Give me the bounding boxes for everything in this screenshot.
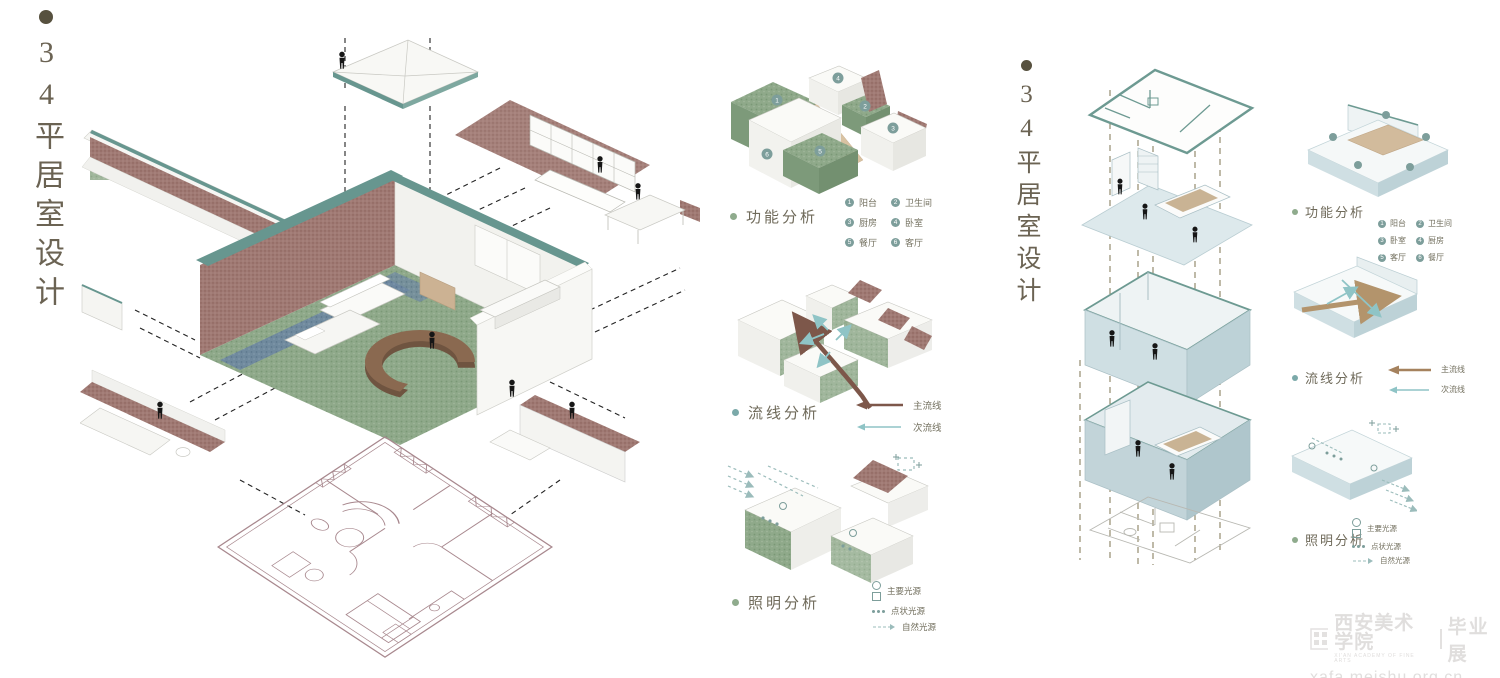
svg-text:5: 5 bbox=[818, 148, 822, 155]
seal-icon bbox=[1310, 628, 1328, 650]
section-bullet-icon bbox=[730, 213, 737, 220]
natural-light-symbol-icon bbox=[1352, 557, 1374, 565]
legend-item: 主要光源 bbox=[1352, 518, 1410, 538]
legend-item: 4厨房 bbox=[1416, 235, 1452, 246]
middle-lighting-label: 照明分析 bbox=[732, 592, 820, 613]
svg-text:2: 2 bbox=[863, 103, 867, 110]
legend-item: 自然光源 bbox=[872, 621, 936, 633]
legend-item: 6客厅 bbox=[891, 236, 932, 249]
floor-plan bbox=[218, 437, 552, 657]
point-light-symbol-icon bbox=[872, 610, 885, 613]
detached-panel-left bbox=[82, 285, 122, 330]
legend-item: 次流线 bbox=[855, 420, 942, 434]
legend-item: 点状光源 bbox=[872, 605, 936, 617]
watermark-exhibition: 毕业展 bbox=[1448, 612, 1500, 666]
svg-text:4: 4 bbox=[836, 75, 840, 82]
section-bullet-icon bbox=[732, 599, 739, 606]
legend-item: 主要光源 bbox=[872, 581, 936, 601]
section-bullet-icon bbox=[732, 409, 739, 416]
right-circulation-label: 流线分析 bbox=[1292, 368, 1365, 387]
legend-item: 次流线 bbox=[1387, 384, 1465, 395]
main-light-symbol-icon bbox=[872, 581, 881, 601]
title-bullet-icon bbox=[39, 10, 53, 24]
watermark-row: 西安美术学院 XI'AN ACADEMY OF FINE ARTS 毕业展 bbox=[1310, 612, 1500, 666]
furniture-layer bbox=[1082, 148, 1252, 265]
middle-function-legend: 1阳台 2卫生间 3厨房 4卧室 5餐厅 6客厅 bbox=[845, 196, 932, 249]
page-title-right: 34平居室设计 bbox=[1008, 81, 1044, 309]
legend-item: 点状光源 bbox=[1352, 541, 1410, 552]
middle-circulation-label: 流线分析 bbox=[732, 402, 820, 423]
middle-function-label: 功能分析 bbox=[730, 206, 818, 227]
main-axon-drawing bbox=[80, 10, 700, 660]
right-lighting-diagram bbox=[1282, 418, 1417, 526]
legend-item: 自然光源 bbox=[1352, 555, 1410, 566]
main-light-symbol-icon bbox=[1352, 518, 1361, 538]
circulation-analysis-drawing-right bbox=[1282, 252, 1427, 364]
svg-text:1: 1 bbox=[775, 97, 779, 104]
middle-lighting-legend: 主要光源 点状光源 自然光源 bbox=[872, 581, 936, 633]
secondary-flow-arrow-icon bbox=[1387, 385, 1433, 395]
page-title: 34平居室设计 bbox=[24, 36, 68, 315]
right-function-diagram bbox=[1288, 95, 1468, 210]
watermark: 西安美术学院 XI'AN ACADEMY OF FINE ARTS 毕业展 xa… bbox=[1310, 612, 1500, 678]
legend-item: 2卫生间 bbox=[891, 196, 932, 209]
lighting-analysis-drawing-right bbox=[1282, 418, 1417, 526]
right-function-label: 功能分析 bbox=[1292, 202, 1365, 221]
right-lighting-legend: 主要光源 点状光源 自然光源 bbox=[1352, 518, 1410, 566]
right-circulation-diagram bbox=[1282, 252, 1427, 364]
section-bullet-icon bbox=[1292, 537, 1298, 543]
legend-item: 主流线 bbox=[1387, 364, 1465, 375]
right-circulation-legend: 主流线 次流线 bbox=[1387, 364, 1465, 395]
exploded-stack-drawing bbox=[1060, 60, 1260, 640]
secondary-flow-arrow-icon bbox=[855, 422, 905, 432]
right-title: 34平居室设计 bbox=[1006, 60, 1046, 309]
main-flow-arrow-icon bbox=[855, 400, 905, 410]
legend-item: 5餐厅 bbox=[845, 236, 877, 249]
section-bullet-icon bbox=[1292, 375, 1298, 381]
title-bullet-icon bbox=[1021, 60, 1032, 71]
legend-item: 3厨房 bbox=[845, 216, 877, 229]
legend-item: 3卧室 bbox=[1378, 235, 1406, 246]
detached-wall-bottom-right bbox=[490, 395, 640, 482]
design-board: 34平居室设计 bbox=[0, 0, 1500, 678]
detached-roof bbox=[333, 40, 478, 109]
middle-circulation-legend: 主流线 次流线 bbox=[855, 398, 942, 434]
legend-item: 1阳台 bbox=[1378, 218, 1406, 229]
watermark-divider bbox=[1440, 629, 1442, 649]
detached-shelving-unit bbox=[455, 100, 650, 212]
main-flow-arrow-icon bbox=[1387, 365, 1433, 375]
legend-item: 4卧室 bbox=[891, 216, 932, 229]
legend-item: 主流线 bbox=[855, 398, 942, 412]
ceiling-plan-layer bbox=[1090, 70, 1252, 153]
detached-lounge-bottom-left bbox=[80, 370, 225, 457]
right-exploded-stack bbox=[1060, 60, 1260, 640]
legend-item: 1阳台 bbox=[845, 196, 877, 209]
svg-text:6: 6 bbox=[765, 151, 769, 158]
section-bullet-icon bbox=[1292, 209, 1298, 215]
point-light-symbol-icon bbox=[1352, 545, 1365, 548]
svg-text:3: 3 bbox=[891, 125, 895, 132]
left-title: 34平居室设计 bbox=[24, 10, 68, 315]
main-exploded-axonometric bbox=[80, 10, 700, 660]
natural-light-symbol-icon bbox=[872, 623, 896, 631]
legend-item: 2卫生间 bbox=[1416, 218, 1452, 229]
watermark-url: xafa.meishu.org.cn bbox=[1310, 669, 1500, 678]
watermark-school: 西安美术学院 XI'AN ACADEMY OF FINE ARTS bbox=[1334, 614, 1434, 664]
function-analysis-drawing-right bbox=[1288, 95, 1468, 210]
